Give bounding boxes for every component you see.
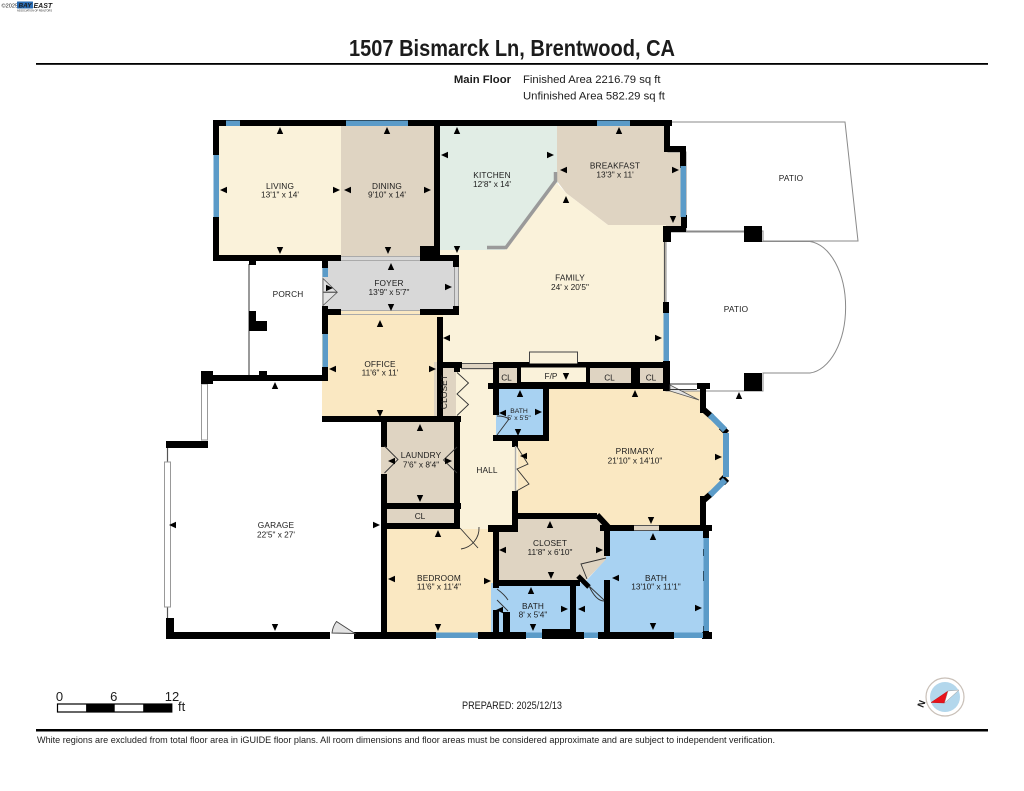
svg-text:13'9" x 5'7": 13'9" x 5'7" xyxy=(369,287,410,297)
svg-text:ASSOCIATION OF REALTORS: ASSOCIATION OF REALTORS xyxy=(17,10,52,13)
svg-text:11'6" x 11': 11'6" x 11' xyxy=(362,368,399,378)
svg-text:White regions are excluded fro: White regions are excluded from total fl… xyxy=(37,735,775,746)
svg-text:6: 6 xyxy=(110,689,117,704)
svg-text:13'1" x 14': 13'1" x 14' xyxy=(261,190,299,200)
svg-text:CL: CL xyxy=(501,373,512,383)
svg-text:CLOSET: CLOSET xyxy=(439,375,449,409)
svg-text:Finished Area 2216.79 sq ft: Finished Area 2216.79 sq ft xyxy=(523,74,661,86)
svg-text:13'10" x 11'1": 13'10" x 11'1" xyxy=(631,582,681,592)
svg-text:FAMILY: FAMILY xyxy=(555,273,585,283)
svg-text:F/P: F/P xyxy=(545,371,558,381)
svg-text:12'8" x 14': 12'8" x 14' xyxy=(473,179,511,189)
svg-text:21'10" x 14'10": 21'10" x 14'10" xyxy=(608,456,663,466)
svg-text:13'3" x 11': 13'3" x 11' xyxy=(596,170,634,180)
svg-text:5' x 5'5": 5' x 5'5" xyxy=(507,415,531,422)
svg-text:22'5" x 27': 22'5" x 27' xyxy=(257,530,295,540)
svg-text:9'10" x 14': 9'10" x 14' xyxy=(368,190,406,200)
svg-text:Unfinished Area 582.29 sq ft: Unfinished Area 582.29 sq ft xyxy=(523,91,666,103)
svg-text:PATIO: PATIO xyxy=(779,173,804,183)
svg-text:CL: CL xyxy=(646,373,657,383)
svg-text:11'6" x 11'4": 11'6" x 11'4" xyxy=(417,582,461,592)
svg-text:0: 0 xyxy=(56,689,63,704)
svg-text:7'6" x 8'4": 7'6" x 8'4" xyxy=(403,460,439,470)
svg-text:24' x 20'5": 24' x 20'5" xyxy=(551,282,589,292)
svg-text:PRIMARY: PRIMARY xyxy=(616,446,655,456)
svg-text:1507 Bismarck Ln, Brentwood, C: 1507 Bismarck Ln, Brentwood, CA xyxy=(349,35,675,61)
svg-text:CL: CL xyxy=(415,511,426,521)
svg-text:PORCH: PORCH xyxy=(273,289,304,299)
svg-text:ft: ft xyxy=(178,699,186,714)
svg-text:PATIO: PATIO xyxy=(724,304,749,314)
svg-text:HALL: HALL xyxy=(476,465,498,475)
svg-text:LAUNDRY: LAUNDRY xyxy=(401,450,442,460)
svg-text:PREPARED: 2025/12/13: PREPARED: 2025/12/13 xyxy=(462,700,562,712)
svg-text:©2025: ©2025 xyxy=(2,3,19,10)
svg-text:GARAGE: GARAGE xyxy=(258,520,295,530)
svg-text:11'8" x 6'10": 11'8" x 6'10" xyxy=(528,547,573,557)
svg-text:BATH: BATH xyxy=(510,408,528,415)
svg-text:CL: CL xyxy=(604,373,615,383)
svg-text:8' x 5'4": 8' x 5'4" xyxy=(519,610,548,620)
svg-text:Main Floor: Main Floor xyxy=(454,74,512,86)
